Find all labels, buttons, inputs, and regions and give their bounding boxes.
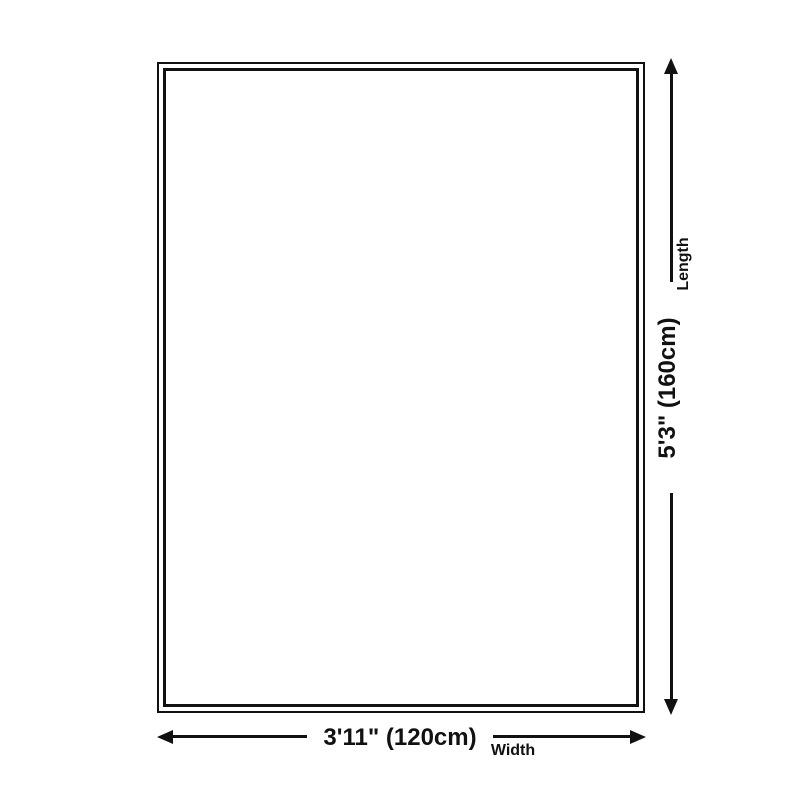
length-label: Length (675, 237, 693, 290)
size-diagram: 5'3" (160cm) Length 3'11" (120cm) Width (0, 0, 800, 800)
length-value: 5'3" (160cm) (654, 317, 682, 458)
arrow-right-icon (630, 730, 646, 744)
length-dimension-line-bottom (670, 493, 673, 701)
rug-outline-inner (163, 68, 639, 707)
rug-outline-outer (157, 62, 645, 713)
width-dimension-line-left (170, 735, 307, 738)
length-dimension-line-top (670, 72, 673, 282)
width-value: 3'11" (120cm) (323, 724, 476, 752)
width-label: Width (491, 742, 535, 760)
arrow-down-icon (664, 699, 678, 715)
width-dimension-line-right (493, 735, 632, 738)
